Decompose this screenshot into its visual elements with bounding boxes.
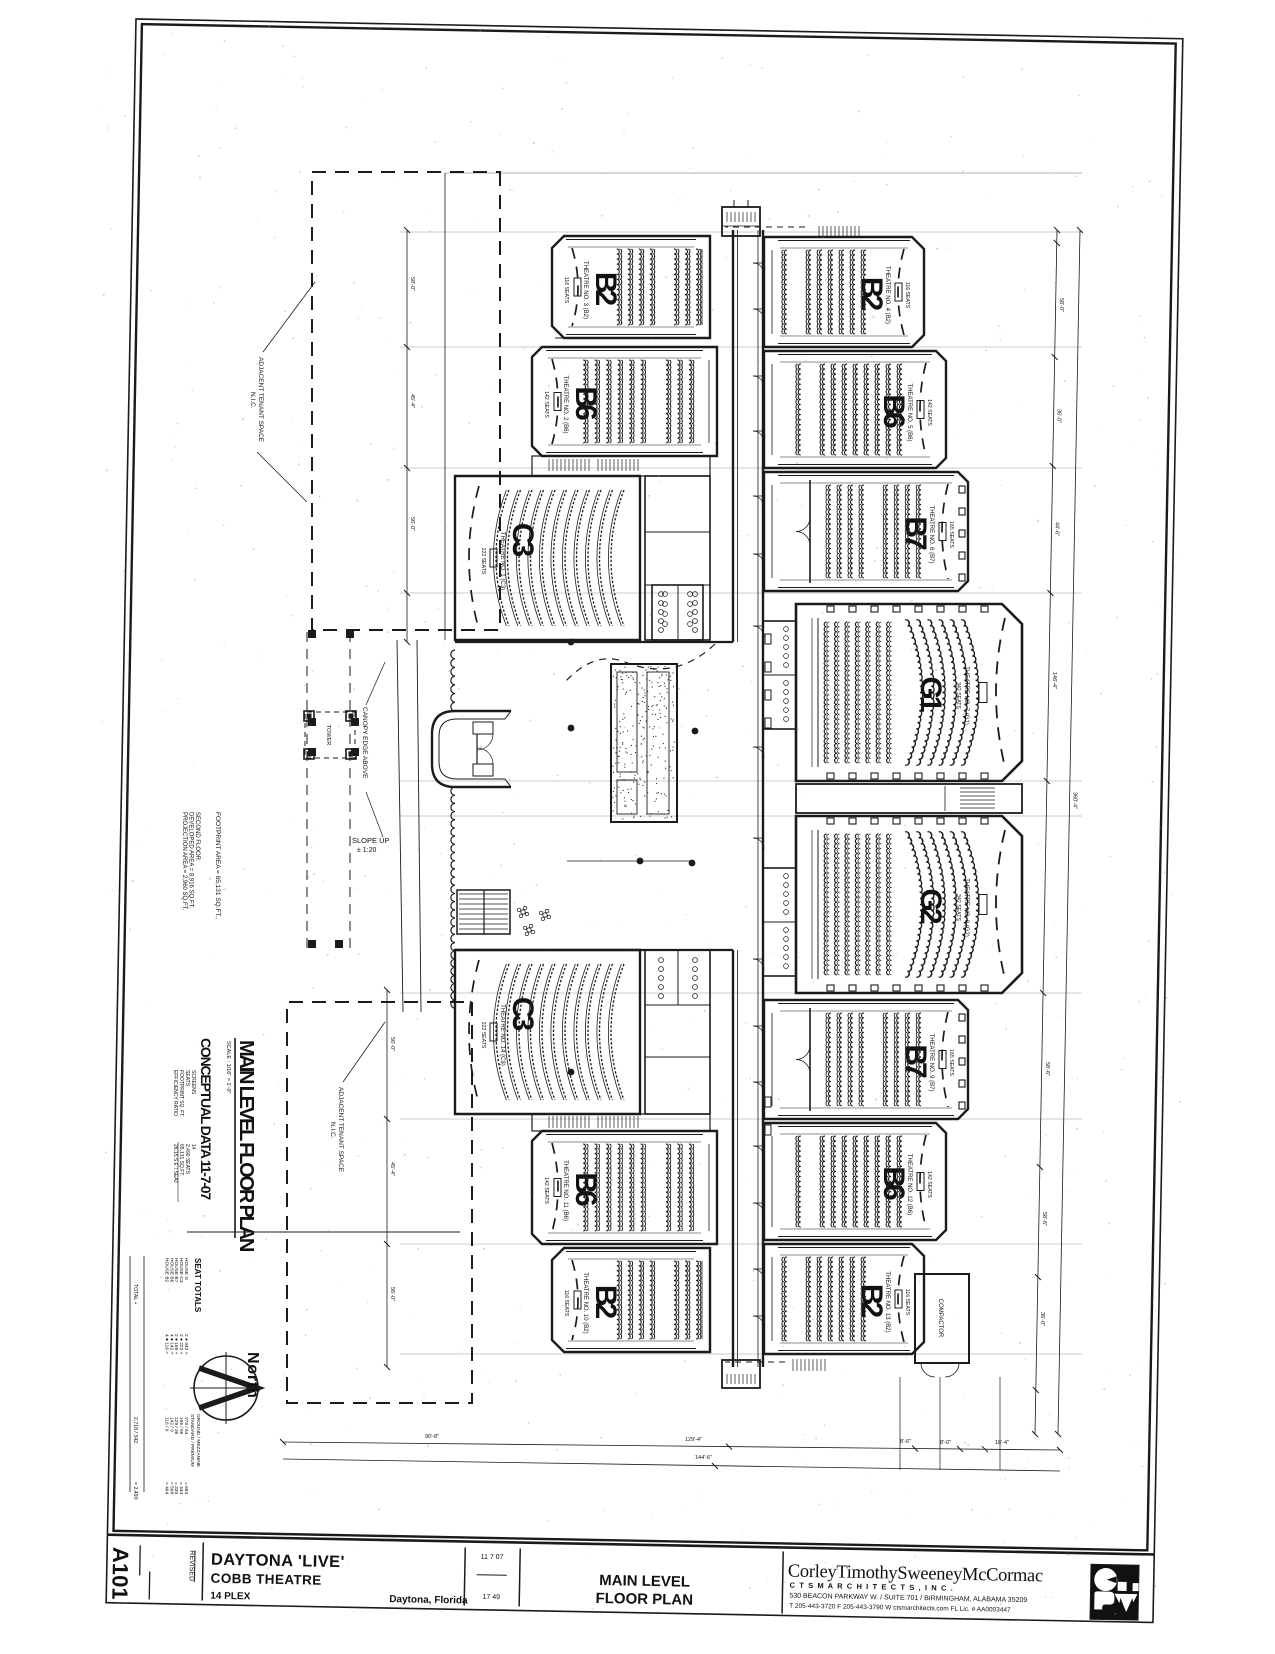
- svg-text:142 SEATS: 142 SEATS: [926, 399, 932, 426]
- svg-text:146'-4": 146'-4": [1051, 672, 1057, 689]
- svg-text:THEATRE NO. 14 (C3): THEATRE NO. 14 (C3): [499, 1004, 505, 1066]
- svg-text:REVISED: REVISED: [188, 1550, 196, 1581]
- svg-text:165 SEATS: 165 SEATS: [948, 1049, 954, 1076]
- svg-text:= 464: = 464: [163, 1482, 169, 1494]
- svg-text:DAYTONA 'LIVE': DAYTONA 'LIVE': [211, 1551, 345, 1572]
- svg-text:G2: G2: [914, 888, 947, 923]
- svg-text:11 7 07: 11 7 07: [481, 1554, 504, 1561]
- svg-text:8'-0": 8'-0": [940, 1440, 951, 1446]
- svg-text:FLOOR PLAN: FLOOR PLAN: [595, 1590, 693, 1609]
- svg-text:58'-6": 58'-6": [1041, 1212, 1047, 1226]
- svg-text:SECOND FLOOR: SECOND FLOOR: [194, 812, 200, 861]
- svg-text:8'-6": 8'-6": [900, 1439, 911, 1445]
- svg-text:45'-4": 45'-4": [409, 394, 415, 408]
- svg-text:B2: B2: [855, 1284, 888, 1318]
- svg-text:ADJACENT TENANT SPACE: ADJACENT TENANT SPACE: [337, 1087, 344, 1173]
- svg-text:36'-0": 36'-0": [1056, 409, 1062, 423]
- svg-text:165 SEATS: 165 SEATS: [948, 521, 954, 548]
- svg-text:DEVELOPED AREA = 8,916 SQ.FT.: DEVELOPED AREA = 8,916 SQ.FT.: [188, 812, 194, 909]
- svg-text:B2: B2: [855, 277, 888, 311]
- svg-text:142 SEATS: 142 SEATS: [543, 1177, 549, 1204]
- svg-text:FOOTPRINT AREA = 65,131 SQ.FT.: FOOTPRINT AREA = 65,131 SQ.FT.,: [214, 812, 221, 920]
- svg-text:B7: B7: [899, 516, 932, 550]
- svg-text:17 49: 17 49: [482, 1594, 500, 1601]
- svg-text:SCALE : 1/16" = 1'-0": SCALE : 1/16" = 1'-0": [225, 1041, 231, 1094]
- svg-text:± 1:20: ± 1:20: [357, 847, 377, 854]
- svg-text:COBB THEATRE: COBB THEATRE: [210, 1571, 321, 1588]
- svg-text:Daytona, Florida: Daytona, Florida: [389, 1594, 468, 1606]
- svg-text:STANDARD / PREMIUM: STANDARD / PREMIUM: [189, 1414, 195, 1467]
- svg-text:58'-0": 58'-0": [1058, 298, 1064, 312]
- svg-text:North: North: [244, 1352, 261, 1399]
- svg-text:14 PLEX: 14 PLEX: [210, 1591, 251, 1603]
- svg-text:116 SEATS: 116 SEATS: [904, 1289, 910, 1316]
- svg-text:56'-0": 56'-0": [389, 1287, 395, 1301]
- svg-text:SLOPE UP: SLOPE UP: [352, 836, 390, 845]
- svg-text:THEATRE NO. 11 (B6): THEATRE NO. 11 (B6): [562, 1160, 568, 1221]
- svg-text:116 / 0: 116 / 0: [163, 1417, 169, 1432]
- svg-text:116 SEATS: 116 SEATS: [563, 1290, 569, 1317]
- svg-text:C3: C3: [506, 523, 539, 557]
- svg-text:222 SEATS: 222 SEATS: [480, 548, 486, 575]
- svg-text:= 2,490: = 2,490: [132, 1482, 138, 1500]
- svg-text:B2: B2: [589, 272, 622, 306]
- svg-text:N.I.C.: N.I.C.: [329, 1122, 336, 1139]
- svg-text:EFFICIENCY RATIO: EFFICIENCY RATIO: [172, 1070, 178, 1116]
- svg-text:56'-0": 56'-0": [389, 1037, 395, 1051]
- svg-text:MAIN LEVEL: MAIN LEVEL: [599, 1572, 690, 1591]
- svg-text:SEAT TOTALS: SEAT TOTALS: [193, 1258, 202, 1313]
- svg-text:2,718 / 342: 2,718 / 342: [132, 1417, 138, 1443]
- svg-text:B7: B7: [899, 1044, 932, 1078]
- svg-text:129'-4": 129'-4": [685, 1437, 702, 1443]
- svg-text:ADJACENT TENANT SPACE: ADJACENT TENANT SPACE: [257, 357, 264, 443]
- svg-text:HOUSE B2: HOUSE B2: [163, 1258, 169, 1283]
- svg-text:GROUND / MEZZANINE: GROUND / MEZZANINE: [195, 1414, 201, 1467]
- svg-text:G1: G1: [914, 676, 947, 711]
- svg-text:360'-4": 360'-4": [1072, 792, 1078, 809]
- svg-text:TOWER: TOWER: [325, 725, 331, 745]
- svg-text:C3: C3: [506, 997, 539, 1031]
- svg-text:90'-8": 90'-8": [425, 1434, 439, 1440]
- svg-text:MAIN LEVEL FLOOR PLAN: MAIN LEVEL FLOOR PLAN: [235, 1040, 257, 1252]
- svg-text:142 SEATS: 142 SEATS: [926, 1171, 932, 1198]
- svg-text:142 SEATS: 142 SEATS: [543, 391, 549, 418]
- svg-text:222 SEATS: 222 SEATS: [480, 1022, 486, 1049]
- svg-text:58'-6": 58'-6": [1044, 1062, 1050, 1076]
- svg-text:56'-0": 56'-0": [409, 517, 415, 531]
- svg-text:TOTAL +: TOTAL +: [132, 1284, 138, 1305]
- svg-text:144'-6": 144'-6": [695, 1455, 712, 1461]
- svg-text:58'-0": 58'-0": [409, 277, 415, 291]
- svg-text:CONCEPTUAL DATA 11-7-07: CONCEPTUAL DATA 11-7-07: [198, 1038, 214, 1200]
- svg-text:44'-6": 44'-6": [1054, 522, 1060, 536]
- svg-text:N.I.C.: N.I.C.: [249, 392, 256, 409]
- svg-text:COMPACTOR: COMPACTOR: [937, 1299, 943, 1338]
- svg-text:116 SEATS: 116 SEATS: [563, 277, 569, 304]
- svg-text:A101: A101: [107, 1547, 133, 1600]
- svg-text:CANOPY EDGE ABOVE: CANOPY EDGE ABOVE: [361, 707, 368, 779]
- svg-text:45'-4": 45'-4": [389, 1162, 395, 1176]
- svg-text:36'-0": 36'-0": [1039, 1312, 1045, 1326]
- svg-text:B6: B6: [877, 1166, 910, 1200]
- svg-text:B6: B6: [877, 394, 910, 428]
- svg-text:116 SEATS: 116 SEATS: [904, 282, 910, 309]
- svg-text:THEATRE NO. 3 (B2): THEATRE NO. 3 (B2): [582, 261, 588, 319]
- svg-text:4 ● 116 =: 4 ● 116 =: [163, 1334, 169, 1354]
- svg-text:THEATRE NO. 2 (B6): THEATRE NO. 2 (B6): [562, 376, 568, 434]
- svg-text:THEATRE NO. 10 (B2): THEATRE NO. 10 (B2): [582, 1272, 588, 1333]
- svg-text:18'-4": 18'-4": [995, 1440, 1009, 1446]
